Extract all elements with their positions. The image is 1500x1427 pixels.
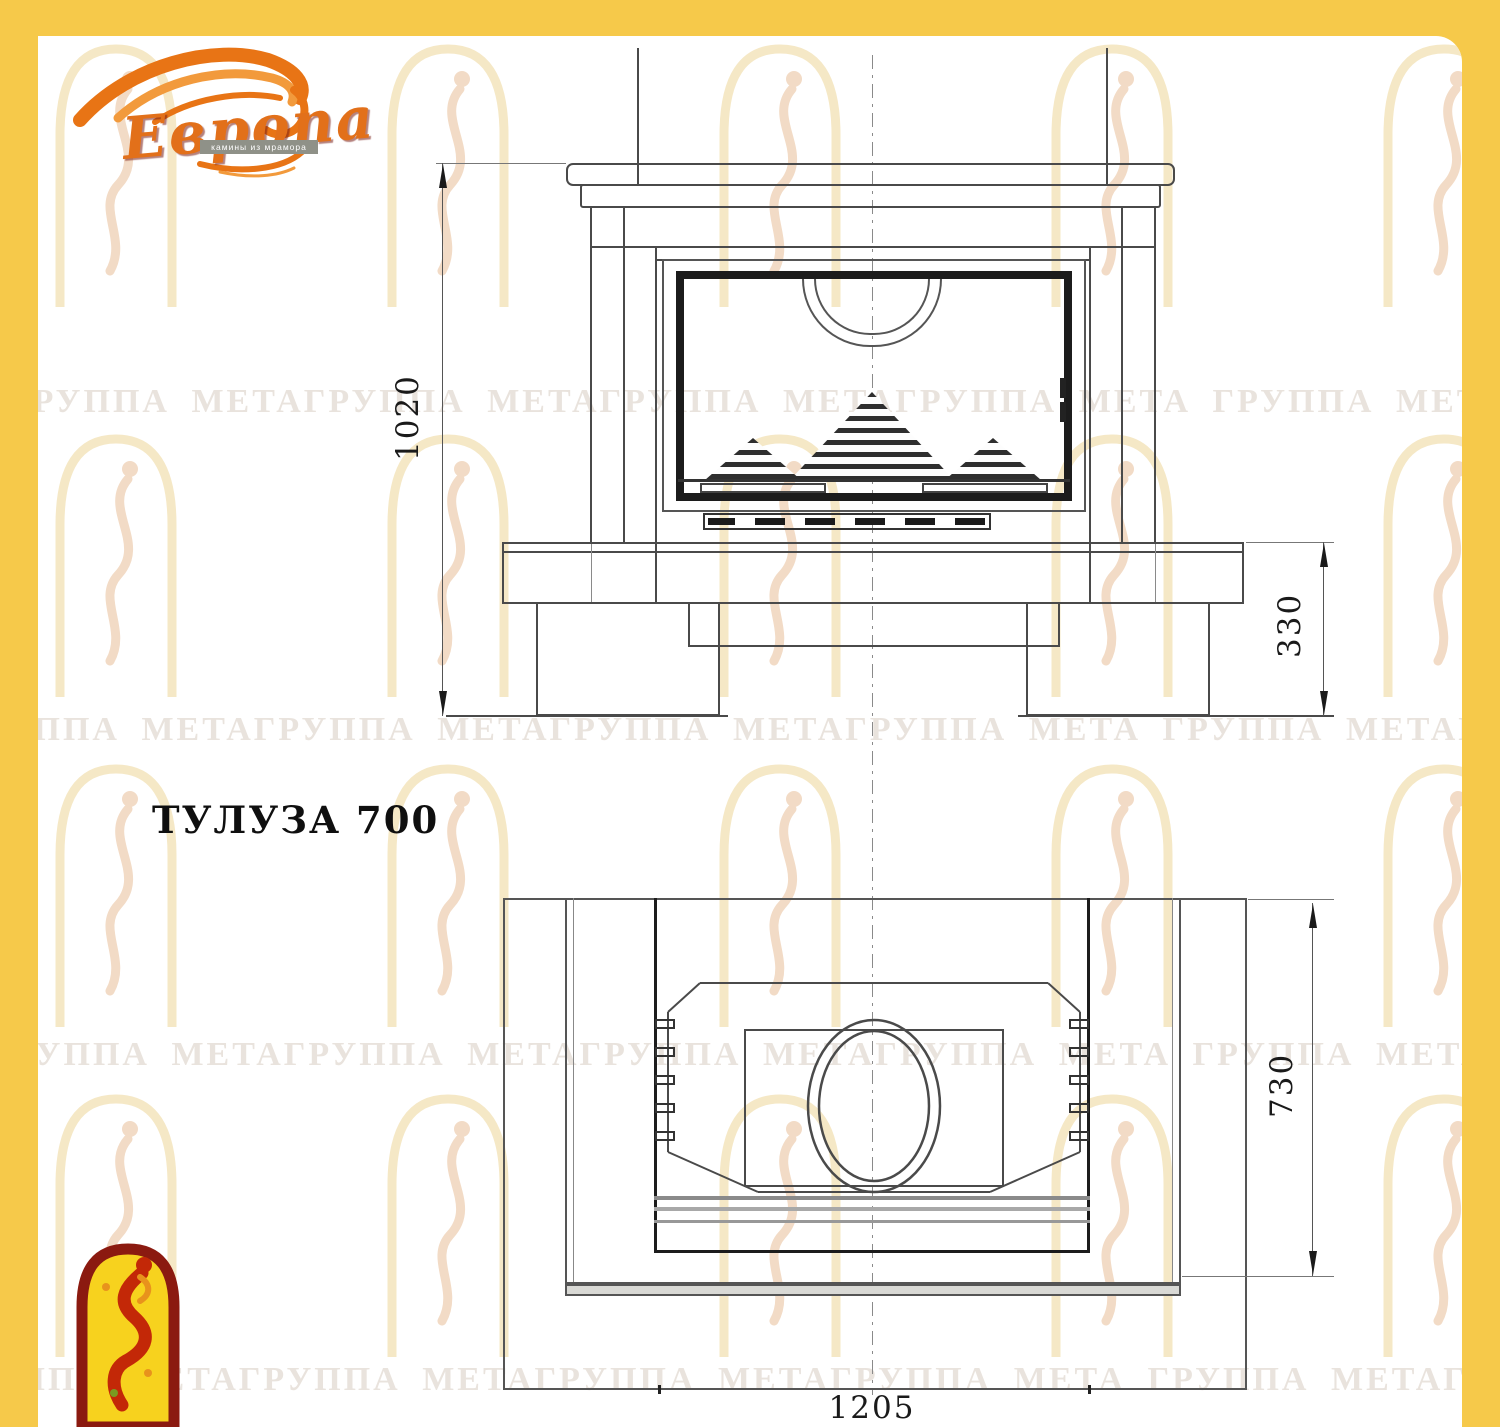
hearth-shelf	[502, 542, 1244, 604]
arrow-up-icon	[439, 164, 447, 188]
grate-base-line	[678, 479, 1070, 482]
watermark-arch	[1378, 36, 1462, 307]
dimension-line	[1312, 903, 1313, 1276]
dimension-line	[442, 163, 443, 716]
watermark-arch	[382, 36, 514, 307]
brand-tagline: камины из мрамора	[200, 140, 318, 154]
back-plate	[745, 1030, 1003, 1186]
extension-line-bottom	[1182, 1276, 1334, 1277]
watermark-arch	[1378, 755, 1462, 1027]
flue-oval-outer	[808, 1020, 940, 1192]
dim-label: 330	[1270, 580, 1310, 670]
tick-left	[658, 1385, 661, 1394]
grate-foot-right	[922, 483, 1048, 493]
dim-label: 1020	[388, 368, 428, 468]
plan-interior-drawing	[503, 898, 1247, 1390]
extension-line	[436, 163, 566, 164]
tick-right	[1088, 1385, 1091, 1394]
door-handle-lower	[1060, 402, 1066, 422]
brand-logo: Европа камины из мрамора	[60, 20, 320, 190]
arrow-up-icon	[1309, 904, 1317, 928]
corner-arch-emblem	[76, 1243, 180, 1427]
watermark-arch	[1378, 1085, 1462, 1357]
dim-label: 1205	[808, 1390, 936, 1426]
corner-bevels	[668, 983, 1080, 1012]
grate-foot-left	[700, 483, 826, 493]
dim-label: 730	[1262, 1038, 1302, 1133]
pilaster-line-left	[623, 206, 625, 543]
hearth-inner-line	[504, 551, 1242, 553]
flue-oval-inner	[819, 1031, 929, 1181]
page-title: ТУЛУЗА 700	[152, 798, 439, 842]
arrow-down-icon	[439, 691, 447, 715]
extension-line	[1248, 899, 1334, 900]
door-handle	[1060, 378, 1066, 398]
arrow-up-icon	[1320, 543, 1328, 567]
pilaster-line-right	[1121, 206, 1123, 543]
arrow-down-icon	[1320, 691, 1328, 715]
hearth-tick-right	[1155, 544, 1156, 602]
base-center-block	[688, 602, 1060, 647]
floor-line-left	[446, 715, 728, 717]
dimension-line	[1323, 542, 1324, 716]
watermark-arch	[382, 1085, 514, 1357]
watermark-arch	[1378, 425, 1462, 697]
vent-grille	[703, 513, 991, 530]
watermark-arch	[50, 425, 182, 697]
mantel-shelf	[566, 163, 1175, 186]
watermark-arch	[382, 755, 514, 1027]
floor-line-right	[1018, 715, 1334, 717]
mantel-shelf-lower	[580, 184, 1161, 208]
rail-hatch-marks	[656, 1020, 1088, 1140]
watermark-arch	[50, 755, 182, 1027]
emblem-arch	[82, 1249, 174, 1427]
side-rails	[668, 1012, 1080, 1152]
page: ГРУППА МЕТАГРУППА МЕТАГРУППА МЕТАГРУППА …	[0, 0, 1500, 1427]
arrow-down-icon	[1309, 1251, 1317, 1275]
hearth-tick-left	[591, 544, 592, 602]
emblem-head	[136, 1257, 152, 1273]
